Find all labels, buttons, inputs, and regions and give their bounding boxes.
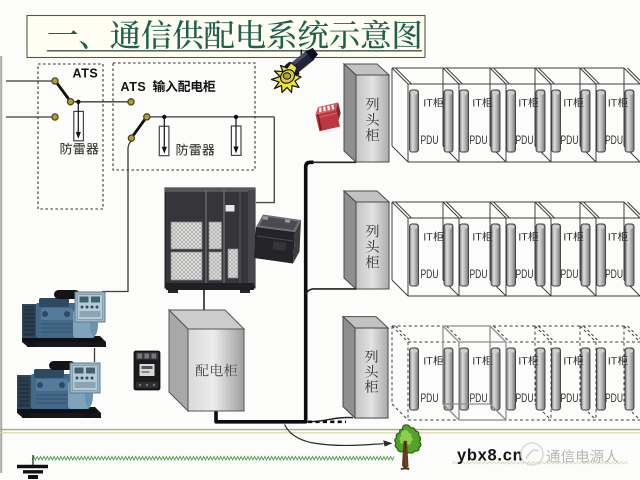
svg-text:ybx8.cn: ybx8.cn bbox=[457, 447, 523, 465]
svg-text:ATS: ATS bbox=[73, 67, 99, 81]
svg-text:ATS: ATS bbox=[121, 80, 147, 94]
